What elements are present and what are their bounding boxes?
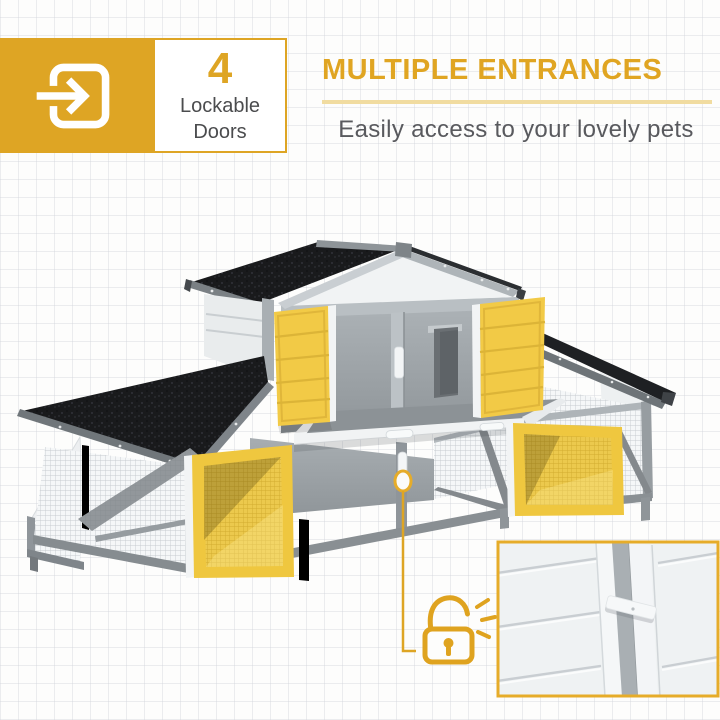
left-run bbox=[27, 437, 204, 576]
lower-right-door bbox=[506, 423, 624, 517]
unlocked-padlock-icon bbox=[425, 598, 495, 662]
product-illustration bbox=[0, 0, 720, 720]
lower-left-door bbox=[184, 445, 294, 578]
page-background-grid: 4 Lockable Doors MULTIPLE ENTRANCES Easi… bbox=[0, 0, 720, 720]
tray-handle bbox=[386, 429, 413, 439]
click-sound-marks bbox=[477, 600, 495, 637]
upper-right-door bbox=[472, 297, 545, 418]
upper-left-door bbox=[274, 305, 336, 434]
latch-highlight-ellipse bbox=[395, 471, 411, 491]
upper-door-latch bbox=[395, 347, 404, 378]
latch-detail-inset bbox=[497, 542, 718, 697]
tray-handle bbox=[480, 422, 504, 431]
